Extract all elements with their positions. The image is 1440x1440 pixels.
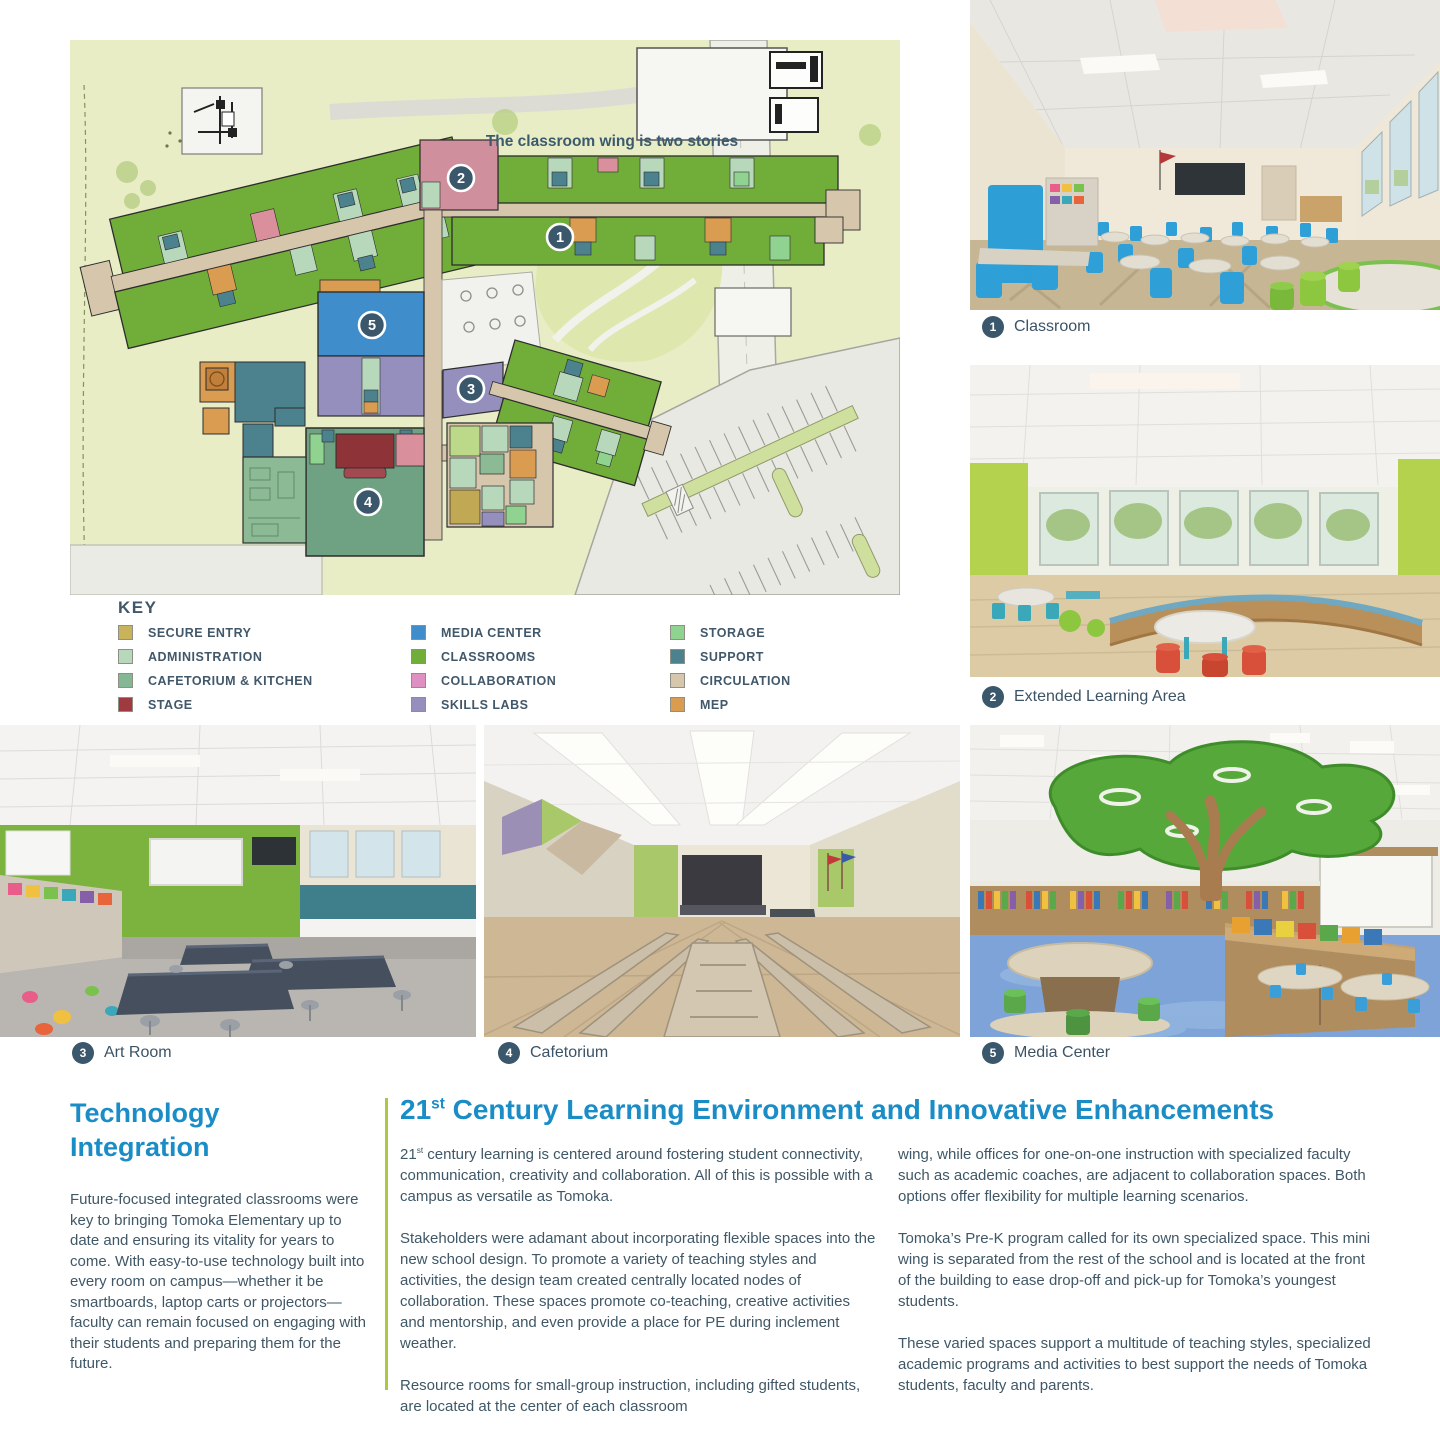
paragraph: These varied spaces support a multitude … [898,1333,1378,1396]
key-swatch [411,625,426,640]
photo-cafetorium [484,725,960,1037]
key-item-classrooms: CLASSROOMS [411,649,556,664]
key-swatch [670,649,685,664]
svg-text:2: 2 [457,171,465,187]
stage-room [336,434,394,468]
caption-cafetorium: 4 Cafetorium [498,1042,608,1064]
room-cluster [447,423,553,527]
tech-integration-body: Future-focused integrated classrooms wer… [70,1190,372,1375]
plan-annotation: The classroom wing is two stories [486,133,738,150]
key-item-collaboration: COLLABORATION [411,673,556,688]
key-item-support: SUPPORT [670,649,791,664]
photo-classroom [970,0,1440,310]
tech-integration-heading: Technology Integration [70,1096,310,1164]
marker-5: 5 [359,312,385,338]
key-swatch [670,625,685,640]
caption-3-badge: 3 [72,1042,94,1064]
key-swatch [118,673,133,688]
caption-extended-learning: 2 Extended Learning Area [982,686,1186,708]
marker-2: 2 [448,165,474,191]
key-item-storage: STORAGE [670,625,791,640]
key-swatch [670,697,685,712]
paragraph: Stakeholders were adamant about incorpor… [400,1228,878,1354]
photo-media-center [970,725,1440,1037]
key-swatch [118,649,133,664]
century-learning-col2: wing, while offices for one-on-one instr… [898,1144,1378,1417]
key-swatch [411,649,426,664]
paragraph: 21st century learning is centered around… [400,1144,878,1207]
photo-art-room [0,725,476,1037]
svg-text:4: 4 [364,495,372,511]
key-item-mep: MEP [670,697,791,712]
svg-text:5: 5 [368,318,376,334]
key-item-media-center: MEDIA CENTER [411,625,556,640]
key-swatch [670,673,685,688]
wing-classroom [420,140,860,265]
caption-2-badge: 2 [982,686,1004,708]
section-divider [385,1098,388,1390]
key-item-administration: ADMINISTRATION [118,649,313,664]
site-plan: The classroom wing is two stories 1 2 3 … [70,40,900,595]
key-swatch [411,697,426,712]
kitchen-room [243,457,306,543]
corridor-spine [424,210,442,540]
key-item-secure-entry: SECURE ENTRY [118,625,313,640]
key-item-skills-labs: SKILLS LABS [411,697,556,712]
road-bottom-left [70,545,322,595]
site-plan-drawing: The classroom wing is two stories 1 2 3 … [70,40,900,595]
paragraph: Tomoka’s Pre-K program called for its ow… [898,1228,1378,1312]
key-item-circulation: CIRCULATION [670,673,791,688]
paragraph: Resource rooms for small-group instructi… [400,1375,878,1417]
key-title: KEY [118,598,157,618]
svg-text:3: 3 [467,382,475,398]
marker-4: 4 [355,489,381,515]
brochure-page: The classroom wing is two stories 1 2 3 … [0,0,1440,1440]
key-swatch [411,673,426,688]
marker-3: 3 [458,376,484,402]
marker-1: 1 [547,224,573,250]
caption-4-badge: 4 [498,1042,520,1064]
century-learning-heading: 21st Century Learning Environment and In… [400,1094,1390,1126]
paragraph: wing, while offices for one-on-one instr… [898,1144,1378,1207]
caption-5-badge: 5 [982,1042,1004,1064]
caption-classroom: 1 Classroom [982,316,1090,338]
caption-media-center: 5 Media Center [982,1042,1110,1064]
key-item-cafetorium: CAFETORIUM & KITCHEN [118,673,313,688]
key-swatch [118,625,133,640]
century-learning-col1: 21st century learning is centered around… [400,1144,878,1438]
caption-1-badge: 1 [982,316,1004,338]
playground-icon [182,88,262,154]
photo-extended-learning [970,365,1440,677]
building-small [715,288,791,336]
key-item-stage: STAGE [118,697,313,712]
caption-art-room: 3 Art Room [72,1042,172,1064]
key-swatch [118,697,133,712]
plan-key: KEY SECURE ENTRY ADMINISTRATION CAFETORI… [70,598,900,720]
svg-text:1: 1 [556,230,564,246]
